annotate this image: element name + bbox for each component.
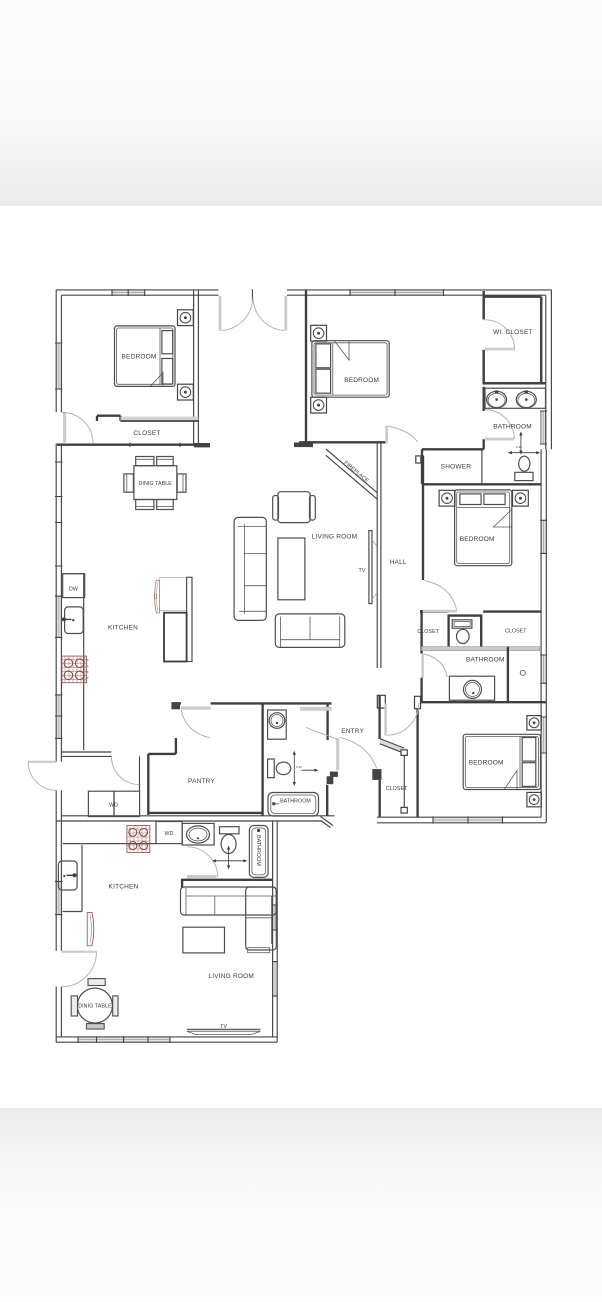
svg-text:HALL: HALL [390, 559, 407, 566]
svg-text:BEDROOM: BEDROOM [460, 536, 495, 543]
svg-text:BEDROOM: BEDROOM [344, 377, 379, 384]
svg-text:DINIG TABLE: DINIG TABLE [139, 481, 173, 487]
svg-text:SHOWER: SHOWER [441, 464, 472, 471]
svg-text:CLOSET: CLOSET [133, 430, 160, 437]
svg-text:LIVING ROOM: LIVING ROOM [312, 534, 358, 541]
svg-text:BATHROOM: BATHROOM [280, 798, 311, 804]
svg-text:BATHROOM: BATHROOM [466, 657, 505, 664]
svg-text:BATHROOM: BATHROOM [255, 835, 261, 866]
svg-text:2.46: 2.46 [296, 765, 302, 769]
svg-text:WD: WD [109, 803, 118, 809]
svg-text:BEDROOM: BEDROOM [469, 759, 504, 766]
svg-text:CLOSET: CLOSET [505, 629, 527, 635]
svg-text:CLOSET: CLOSET [417, 629, 439, 635]
svg-text:BEDROOM: BEDROOM [122, 354, 157, 361]
svg-text:BATHROOM: BATHROOM [493, 423, 532, 430]
svg-text:TV: TV [220, 1024, 227, 1030]
svg-text:WI. CLOSET: WI. CLOSET [493, 329, 533, 336]
svg-text:KITCHEN: KITCHEN [109, 884, 139, 891]
svg-text:DW: DW [69, 586, 78, 592]
svg-text:DINIG TABLE: DINIG TABLE [78, 1003, 112, 1009]
svg-text:TV: TV [359, 568, 366, 574]
svg-text:2.46: 2.46 [516, 445, 522, 449]
svg-text:PANTRY: PANTRY [188, 778, 215, 785]
svg-text:LIVING ROOM: LIVING ROOM [208, 973, 254, 980]
svg-text:CLOSET: CLOSET [386, 786, 408, 792]
svg-text:WD: WD [165, 831, 174, 837]
svg-text:ENTRY: ENTRY [341, 728, 364, 735]
svg-text:KITCHEN: KITCHEN [108, 625, 138, 632]
